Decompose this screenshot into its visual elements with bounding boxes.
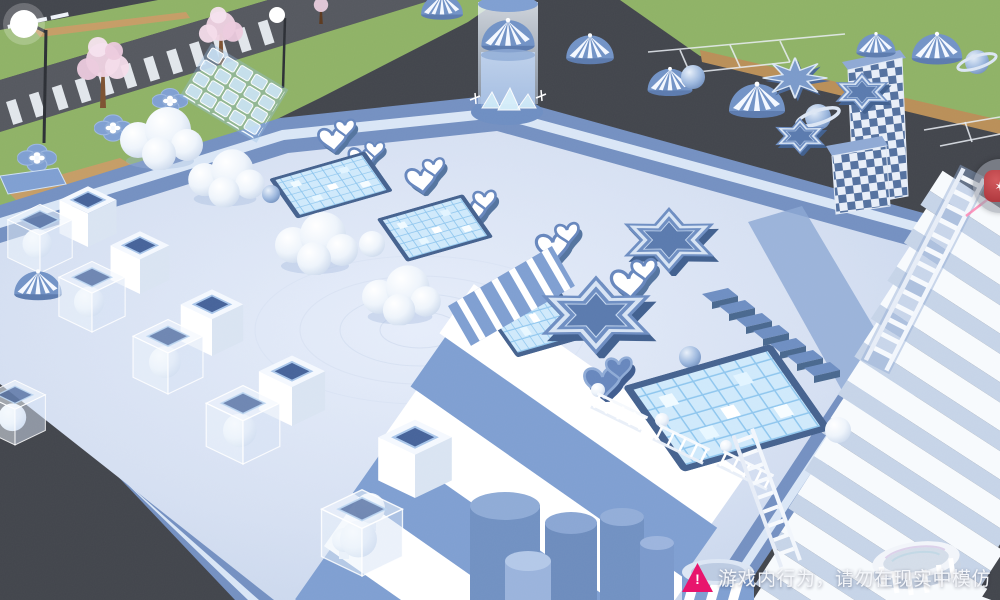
scene-3d[interactable] xyxy=(0,0,1000,600)
warning-triangle-icon: ! xyxy=(682,563,713,592)
game-viewport: ! 游戏内行为，请勿在现实中模仿 ✶ xyxy=(0,0,1000,600)
warning-banner: ! 游戏内行为，请勿在现实中模仿 xyxy=(682,563,991,592)
noise-overlay xyxy=(0,0,1000,600)
warning-text: 游戏内行为，请勿在现实中模仿 xyxy=(718,564,991,591)
burst-icon: ✶ xyxy=(984,170,1000,202)
warning-mark: ! xyxy=(682,572,713,586)
